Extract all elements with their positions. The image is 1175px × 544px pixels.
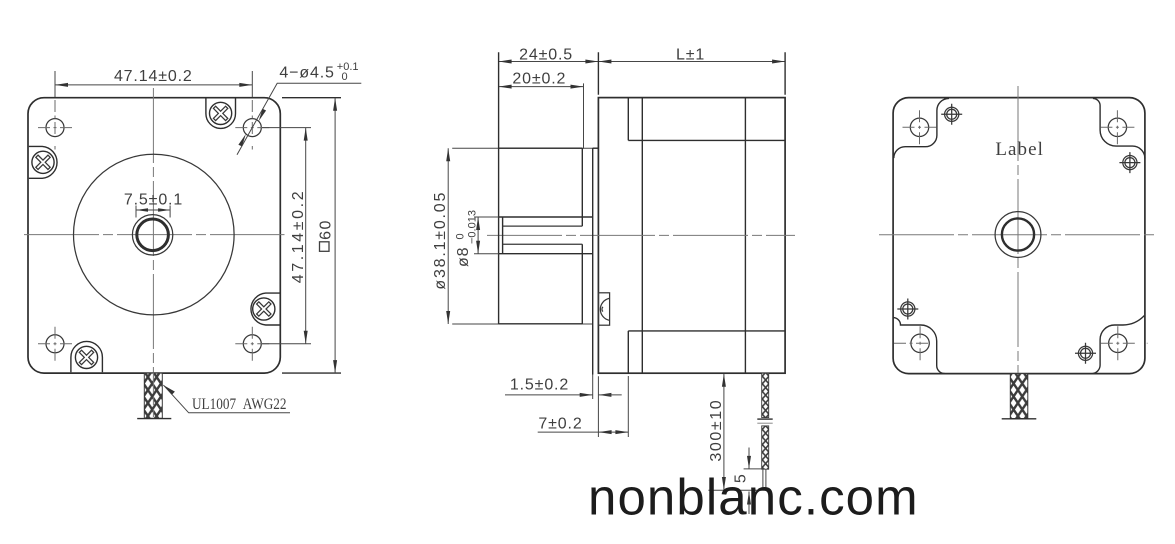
svg-text:47.14±0.2: 47.14±0.2	[290, 189, 307, 283]
svg-text:20±0.2: 20±0.2	[512, 71, 566, 88]
svg-text:0: 0	[342, 71, 348, 83]
svg-text:ø38.1±0.05: ø38.1±0.05	[432, 191, 449, 290]
svg-text:nonblanc.com: nonblanc.com	[588, 469, 919, 526]
svg-text:ø8: ø8	[455, 247, 472, 267]
svg-text:7.5±0.1: 7.5±0.1	[124, 192, 183, 209]
svg-text:0: 0	[455, 233, 467, 239]
svg-text:7±0.2: 7±0.2	[538, 416, 582, 433]
svg-text:UL1007 AWG22: UL1007 AWG22	[192, 396, 287, 413]
svg-text:300±10: 300±10	[708, 399, 725, 462]
svg-text:4−ø4.5: 4−ø4.5	[279, 65, 334, 82]
svg-text:Label: Label	[995, 139, 1044, 160]
svg-text:+0.1: +0.1	[337, 61, 359, 73]
svg-text:1.5±0.2: 1.5±0.2	[510, 377, 569, 394]
svg-text:47.14±0.2: 47.14±0.2	[114, 68, 193, 85]
